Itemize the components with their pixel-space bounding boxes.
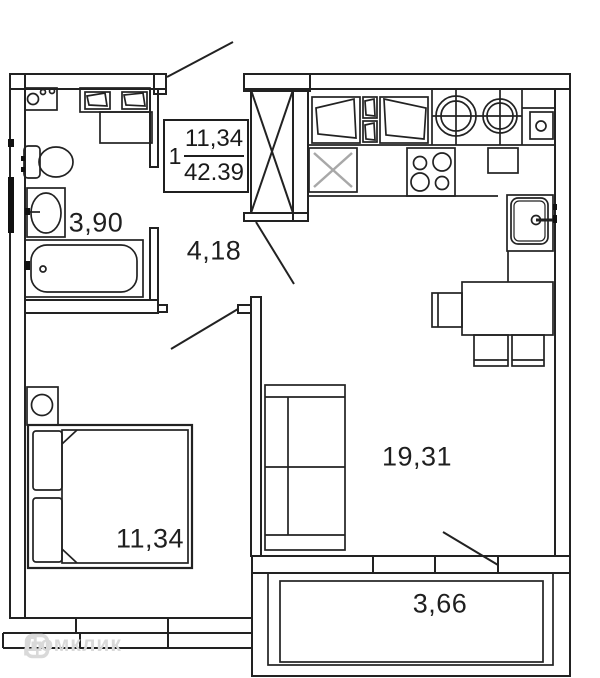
washing-machine-slot [309,148,357,192]
vent-shaft [244,74,310,221]
kitchen-sink [507,195,557,282]
balcony-window-door [252,532,570,573]
bathtub [24,240,143,297]
nightstand-lamp [27,387,58,425]
dining-table [462,282,553,335]
area-label-hallway: 4,18 [187,236,242,267]
bathroom-wall-cabinets [80,88,152,143]
washbasin [25,188,65,237]
area-label-balcony: 3,66 [413,589,468,620]
sofa [265,385,345,550]
area-label-bathroom: 3,90 [69,208,124,239]
unit-room-area: 11,34 [184,124,244,157]
bedroom-door-swing [171,309,238,349]
boiler [530,112,553,139]
kitchen-upper-row [308,89,555,145]
washer-unit [25,88,57,110]
floor-plan-drawing [0,0,600,678]
range-hood [488,148,518,173]
unit-info-box: 1 11,34 42.39 [163,119,249,193]
unit-areas: 11,34 42.39 [182,124,247,188]
area-label-bedroom: 11,34 [116,524,184,555]
chair [474,335,508,366]
domclick-logo-icon [24,633,50,659]
chair [432,293,462,327]
unit-number: 1 [165,143,182,170]
pillow [33,431,62,490]
bathroom-walls [25,89,167,313]
pillow [33,498,62,562]
floor-plan: 3,90 4,18 11,34 19,31 3,66 1 11,34 42.39… [0,0,600,678]
entrance-door-swing [167,42,233,77]
toilet [21,146,73,178]
area-label-living-kitchen: 19,31 [382,442,452,473]
watermark: Домклик [24,633,122,657]
chair [512,335,544,366]
unit-total-area: 42.39 [184,157,244,188]
outer-walls [8,74,570,618]
bedroom-partition [238,297,261,556]
kitchen-door-swing [256,222,294,284]
cooktop [407,148,455,196]
